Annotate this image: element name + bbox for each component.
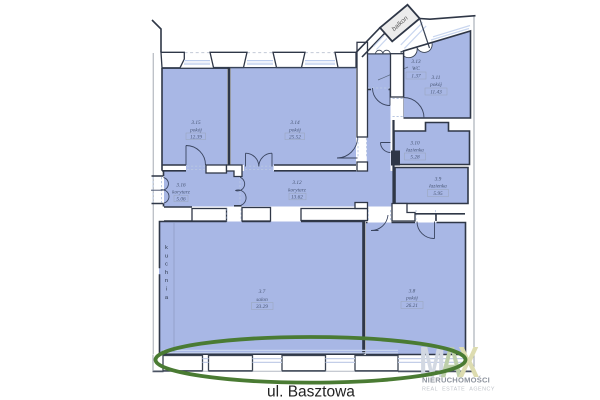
svg-text:pokój: pokój <box>288 127 301 133</box>
svg-text:3.12: 3.12 <box>292 180 302 186</box>
svg-text:korytarz: korytarz <box>288 187 306 193</box>
svg-text:3.13: 3.13 <box>411 59 421 65</box>
svg-text:NIERUCHOMOŚCI: NIERUCHOMOŚCI <box>422 376 490 385</box>
svg-text:5.95: 5.95 <box>433 191 443 197</box>
svg-text:5.28: 5.28 <box>410 155 420 161</box>
svg-text:33.29: 33.29 <box>256 304 268 310</box>
svg-text:łazienka: łazienka <box>406 148 424 154</box>
svg-text:k: k <box>165 245 168 251</box>
svg-text:3.8: 3.8 <box>409 289 416 295</box>
svg-text:pokój: pokój <box>189 127 202 133</box>
svg-text:25.52: 25.52 <box>289 134 301 140</box>
svg-text:3.15: 3.15 <box>191 120 201 126</box>
svg-text:i: i <box>166 287 167 293</box>
svg-text:h: h <box>165 270 168 276</box>
svg-text:ul. Basztowa: ul. Basztowa <box>267 384 355 400</box>
svg-text:pokój: pokój <box>429 82 442 88</box>
svg-text:pokój: pokój <box>405 296 418 302</box>
svg-text:n: n <box>165 278 168 284</box>
svg-text:3.14: 3.14 <box>290 120 300 126</box>
svg-text:u: u <box>165 253 168 259</box>
svg-text:łazienka: łazienka <box>429 184 447 190</box>
svg-text:3.10: 3.10 <box>410 141 420 147</box>
svg-text:3.16: 3.16 <box>176 183 186 189</box>
svg-text:26.21: 26.21 <box>406 303 418 309</box>
svg-text:3.7: 3.7 <box>259 289 266 295</box>
svg-text:1.37: 1.37 <box>411 74 421 80</box>
svg-text:salon: salon <box>256 297 268 303</box>
svg-text:3.9: 3.9 <box>435 177 442 183</box>
svg-text:REAL ESTATE AGENCY: REAL ESTATE AGENCY <box>422 387 495 393</box>
svg-text:11.43: 11.43 <box>430 90 442 96</box>
svg-text:5.06: 5.06 <box>176 197 186 203</box>
svg-text:3.11: 3.11 <box>432 75 441 81</box>
svg-text:WC: WC <box>412 66 420 72</box>
svg-text:korytarz: korytarz <box>172 190 190 196</box>
svg-text:12.39: 12.39 <box>190 134 202 140</box>
svg-text:c: c <box>165 262 168 268</box>
svg-text:13.62: 13.62 <box>291 194 303 200</box>
